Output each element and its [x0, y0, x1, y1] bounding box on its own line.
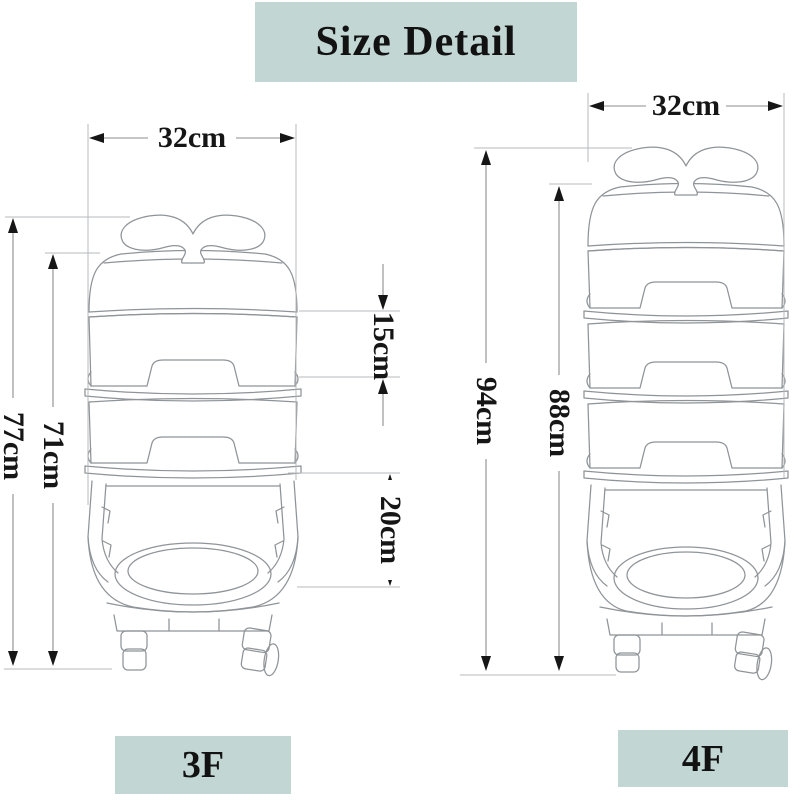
dimension-arrow-down: [8, 651, 18, 666]
dimension-arrow-left: [89, 133, 104, 143]
title-banner: Size Detail: [255, 2, 577, 82]
variant-badge-4f: 4F: [618, 730, 788, 787]
size-detail-diagram: Size Detail 32cm 77cm 71cm 15cm 20cm 32c…: [0, 0, 800, 800]
dimension-arrow-up: [48, 254, 58, 269]
dimension-arrow-up: [554, 186, 564, 201]
dimension-arrow-left: [589, 101, 604, 111]
variant-label-4f: 4F: [682, 737, 724, 781]
dim-label-width-4f: 32cm: [631, 88, 741, 124]
dimension-arrow-up: [481, 150, 491, 165]
trolley-4f-drawing: [584, 147, 788, 681]
dim-label-tier-height-3f: 15cm: [366, 296, 400, 396]
dimension-arrow-down: [48, 651, 58, 666]
dim-label-width-3f: 32cm: [137, 120, 247, 156]
dim-label-body-height-3f: 71cm: [36, 405, 70, 505]
dimension-arrow-right: [280, 133, 295, 143]
page-title: Size Detail: [315, 18, 516, 66]
dimension-arrow-down: [481, 656, 491, 671]
dimension-arrow-up: [8, 218, 18, 233]
dim-label-basket-height-3f: 20cm: [373, 480, 407, 580]
variant-badge-3f: 3F: [115, 736, 291, 794]
dim-label-total-height-3f: 77cm: [0, 396, 30, 496]
dim-label-body-height-4f: 88cm: [542, 373, 576, 473]
variant-label-3f: 3F: [182, 743, 224, 787]
dimension-arrow-down: [554, 656, 564, 671]
trolley-3f-drawing: [85, 215, 301, 677]
dimension-arrow-right: [768, 101, 783, 111]
dim-label-total-height-4f: 94cm: [469, 361, 503, 461]
